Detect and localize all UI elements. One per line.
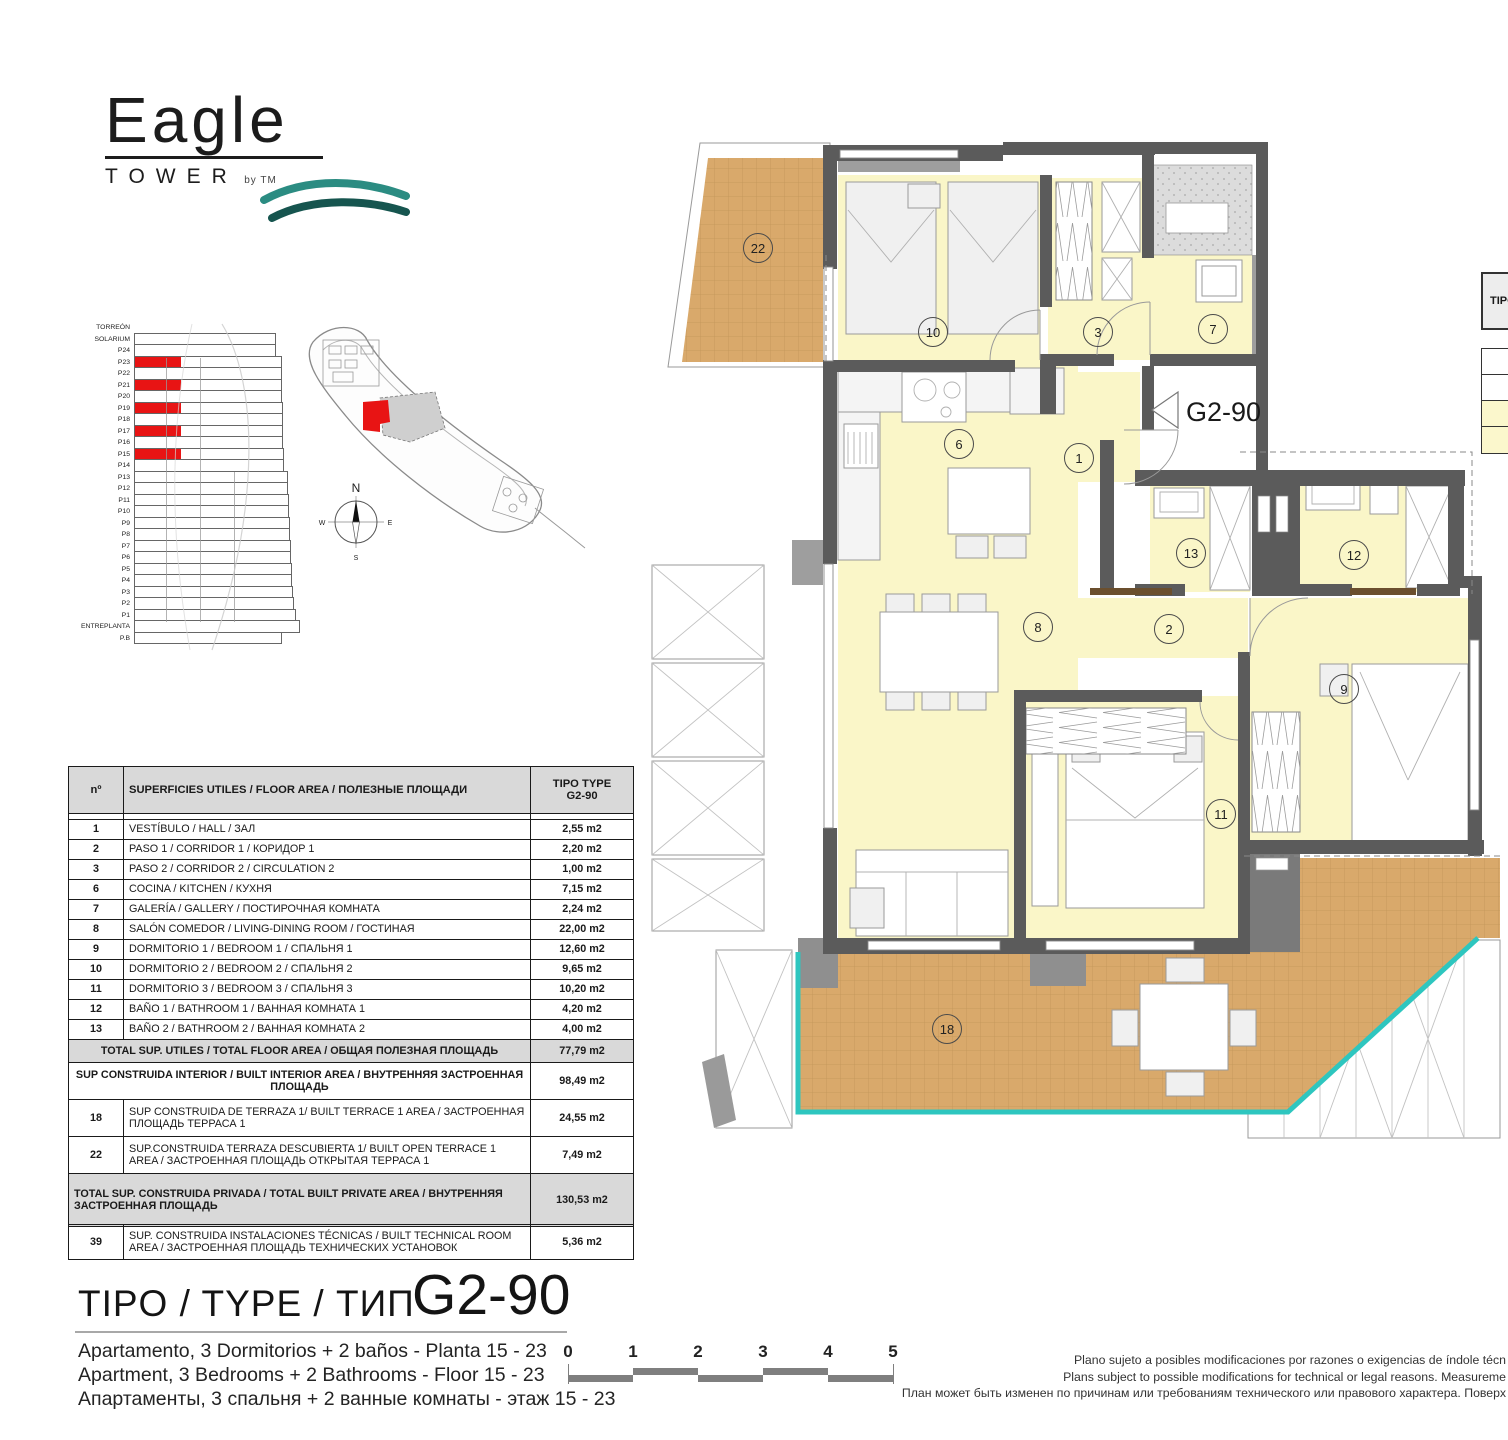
- room-number-bathroom2: 13: [1176, 538, 1206, 568]
- logo-rule: [105, 156, 323, 159]
- fragment-table-row: [1481, 400, 1508, 428]
- plan-sheet: Eagle TOWER by TM TORREÓN SOLARIUM P24 P…: [0, 0, 1508, 1440]
- elevation-column-line: [234, 472, 235, 622]
- room-number-bedroom2: 10: [918, 317, 948, 347]
- elevation-column-line: [166, 358, 167, 622]
- table-row: 6COCINA / KITCHEN / КУХНЯ7,15 m2: [69, 880, 634, 900]
- eagle-tower-logo: Eagle TOWER by TM: [105, 88, 435, 189]
- svg-text:N: N: [352, 482, 361, 495]
- scale-segment: [633, 1368, 698, 1375]
- table-row: 18SUP CONSTRUIDA DE TERRAZA 1/ BUILT TER…: [69, 1100, 634, 1137]
- room-number-bathroom1: 12: [1339, 540, 1369, 570]
- red-floor-bar: [135, 357, 181, 367]
- table-row: 1VESTÍBULO / HALL / ЗАЛ2,55 m2: [69, 820, 634, 840]
- disclaimer-ru: План может быть изменен по причинам или …: [786, 1385, 1506, 1402]
- total-floor-area-row: TOTAL SUP. UTILES / TOTAL FLOOR AREA / О…: [69, 1040, 634, 1063]
- room-number-bedroom1: 9: [1329, 674, 1359, 704]
- description-es: Apartamento, 3 Dormitorios + 2 baños - P…: [78, 1340, 547, 1363]
- table-row: 10DORMITORIO 2 / BEDROOM 2 / СПАЛЬНЯ 29,…: [69, 960, 634, 980]
- scale-tick: 1: [628, 1342, 637, 1362]
- scale-tick: 3: [758, 1342, 767, 1362]
- fragment-table-header: TIPO: [1481, 272, 1508, 330]
- plan-unit-label: G2-90: [1186, 397, 1261, 428]
- table-row: 8SALÓN COMEDOR / LIVING-DINING ROOM / ГО…: [69, 920, 634, 940]
- fragment-table-row: [1481, 348, 1508, 376]
- disclaimer-en: Plans subject to possible modifications …: [786, 1369, 1506, 1386]
- table-row: 13BAÑO 2 / BATHROOM 2 / ВАННАЯ КОМНАТА 2…: [69, 1020, 634, 1040]
- table-row: 3PASO 2 / CORRIDOR 2 / CIRCULATION 21,00…: [69, 860, 634, 880]
- room-number-gallery: 7: [1198, 314, 1228, 344]
- scale-tick: 0: [563, 1342, 572, 1362]
- floor-plan-drawing: [608, 130, 1508, 1170]
- room-number-corridor2: 3: [1083, 317, 1113, 347]
- elevation-column-line: [200, 358, 201, 622]
- compass-icon: N E W S: [318, 482, 394, 566]
- table-row: 2PASO 1 / CORRIDOR 1 / КОРИДОР 12,20 m2: [69, 840, 634, 860]
- footer-divider: [75, 1331, 567, 1333]
- fragment-table-row: [1481, 374, 1508, 402]
- table-row: 39 SUP. CONSTRUIDA INSTALACIONES TÉCNICA…: [69, 1225, 634, 1260]
- type-label: TIPO / TYPE / ТИП: [78, 1283, 415, 1325]
- disclaimer-es: Plano sujeto a posibles modificaciones p…: [786, 1352, 1506, 1369]
- building-elevation-diagram: TORREÓN SOLARIUM P24 P23 P22 P21 P20 P19…: [72, 322, 312, 652]
- room-number-corridor1: 2: [1154, 614, 1184, 644]
- logo-waves-icon: [260, 170, 410, 240]
- type-code: G2-90: [412, 1262, 570, 1328]
- table-row: 9DORMITORIO 1 / BEDROOM 1 / СПАЛЬНЯ 112,…: [69, 940, 634, 960]
- red-floor-bar: [135, 380, 181, 390]
- room-number-terrace: 18: [932, 1014, 962, 1044]
- unit-entrance-marker-icon: [1152, 392, 1178, 428]
- scale-segment: [698, 1375, 763, 1382]
- red-floor-bar: [135, 449, 181, 459]
- floor-area-table: nº SUPERFICIES UTILES / FLOOR AREA / ПОЛ…: [68, 766, 634, 1227]
- svg-text:S: S: [354, 555, 359, 562]
- fragment-table-row: [1481, 426, 1508, 454]
- room-number-hall: 1: [1064, 443, 1094, 473]
- table-row: 12BAÑO 1 / BATHROOM 1 / ВАННАЯ КОМНАТА 1…: [69, 1000, 634, 1020]
- disclaimer: Plano sujeto a posibles modificaciones p…: [786, 1352, 1508, 1402]
- red-floor-bar: [135, 403, 181, 413]
- logo-brand: Eagle: [105, 88, 435, 152]
- room-number-bedroom3: 11: [1206, 799, 1236, 829]
- red-floor-bar: [135, 426, 181, 436]
- scale-tick: 2: [693, 1342, 702, 1362]
- scale-segment: [568, 1375, 633, 1382]
- room-number-living: 8: [1023, 612, 1053, 642]
- elevation-floor: P.B: [72, 633, 312, 645]
- description-ru: Апартаменты, 3 спальня + 2 ванные комнат…: [78, 1388, 615, 1411]
- total-private-area-row: TOTAL SUP. CONSTRUIDA PRIVADA / TOTAL BU…: [69, 1174, 634, 1227]
- technical-room-table: 39 SUP. CONSTRUIDA INSTALACIONES TÉCNICA…: [68, 1224, 634, 1260]
- table-header-row: nº SUPERFICIES UTILES / FLOOR AREA / ПОЛ…: [69, 767, 634, 814]
- table-row: 11DORMITORIO 3 / BEDROOM 3 / СПАЛЬНЯ 310…: [69, 980, 634, 1000]
- room-number-kitchen: 6: [944, 429, 974, 459]
- room-number-terrace-open: 22: [743, 233, 773, 263]
- svg-text:E: E: [388, 520, 393, 527]
- logo-sub: TOWER: [105, 165, 238, 189]
- description-en: Apartment, 3 Bedrooms + 2 Bathrooms - Fl…: [78, 1364, 545, 1387]
- table-row: 7GALERÍA / GALLERY / ПОСТИРОЧНАЯ КОМНАТА…: [69, 900, 634, 920]
- built-interior-row: SUP CONSTRUIDA INTERIOR / BUILT INTERIOR…: [69, 1063, 634, 1100]
- table-row: 22SUP.CONSTRUIDA TERRAZA DESCUBIERTA 1/ …: [69, 1137, 634, 1174]
- svg-text:W: W: [319, 520, 326, 527]
